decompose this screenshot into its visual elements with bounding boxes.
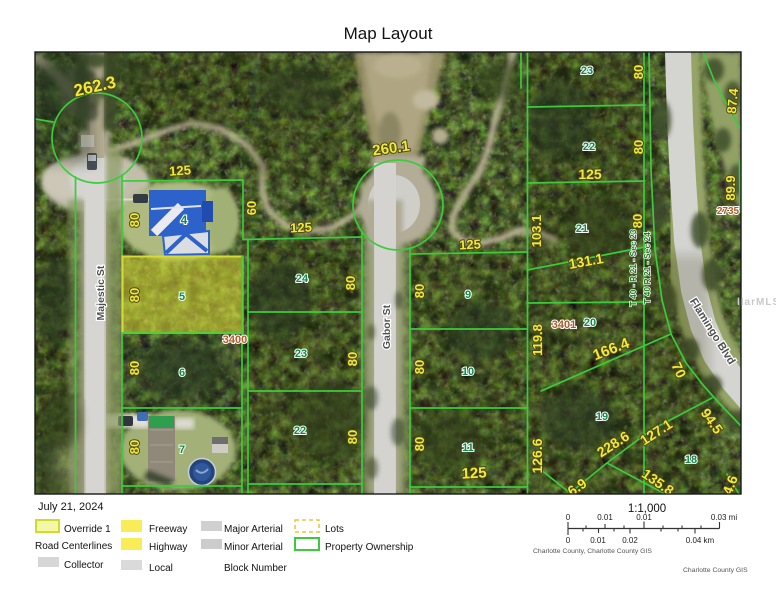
svg-text:23: 23: [295, 348, 307, 360]
svg-text:80: 80: [412, 360, 427, 374]
svg-text:9: 9: [465, 289, 471, 301]
svg-text:Road Centerlines: Road Centerlines: [35, 541, 112, 552]
svg-text:80: 80: [127, 361, 142, 375]
svg-text:7: 7: [179, 444, 185, 456]
svg-text:23: 23: [581, 65, 593, 77]
svg-text:0: 0: [566, 513, 571, 522]
svg-text:Major Arterial: Major Arterial: [224, 524, 283, 535]
svg-text:3400: 3400: [223, 334, 247, 346]
svg-text:80: 80: [127, 440, 142, 454]
svg-text:21: 21: [576, 223, 588, 235]
svg-text:22: 22: [294, 425, 306, 437]
svg-text:89.9: 89.9: [723, 175, 738, 200]
svg-text:0.01: 0.01: [597, 513, 613, 522]
svg-text:80: 80: [345, 352, 360, 366]
svg-text:Local: Local: [149, 563, 173, 574]
svg-text:Majestic St: Majestic St: [95, 265, 107, 320]
svg-text:Highway: Highway: [149, 542, 187, 553]
svg-text:125: 125: [578, 166, 602, 182]
svg-text:Override 1: Override 1: [64, 524, 111, 535]
svg-text:87.4: 87.4: [724, 87, 741, 114]
svg-text:125: 125: [290, 219, 312, 235]
svg-text:T 40 R 21 - Sec 24: T 40 R 21 - Sec 24: [642, 232, 652, 304]
svg-text:Lots: Lots: [325, 524, 344, 535]
svg-text:4: 4: [181, 213, 188, 227]
svg-text:0.04 km: 0.04 km: [686, 536, 715, 545]
svg-text:125: 125: [459, 236, 481, 252]
svg-text:80: 80: [630, 214, 645, 228]
svg-text:60: 60: [244, 201, 259, 215]
svg-text:5: 5: [179, 291, 185, 303]
svg-text:80: 80: [631, 65, 646, 79]
svg-text:Property Ownership: Property Ownership: [325, 542, 414, 553]
svg-text:103.1: 103.1: [529, 215, 544, 248]
svg-text:Freeway: Freeway: [149, 524, 187, 535]
svg-text:22: 22: [583, 141, 595, 153]
svg-text:80: 80: [127, 288, 142, 302]
svg-text:6: 6: [179, 367, 185, 379]
svg-text:Collector: Collector: [64, 560, 104, 571]
svg-text:10: 10: [462, 366, 474, 378]
svg-text:3401: 3401: [552, 319, 576, 331]
svg-text:0.02: 0.02: [622, 536, 638, 545]
svg-text:80: 80: [127, 213, 142, 227]
svg-text:20: 20: [584, 317, 596, 329]
svg-text:T 40 - R 21 - Sec 23: T 40 - R 21 - Sec 23: [628, 229, 638, 306]
svg-text:0.01: 0.01: [590, 536, 606, 545]
svg-text:Charlotte County GIS: Charlotte County GIS: [683, 567, 748, 574]
svg-text:80: 80: [412, 284, 427, 298]
svg-text:80: 80: [343, 276, 358, 290]
svg-text:19: 19: [596, 411, 608, 423]
svg-text:18: 18: [685, 454, 697, 466]
svg-text:Gabor St: Gabor St: [381, 304, 393, 349]
svg-text:Minor Arterial: Minor Arterial: [224, 542, 283, 553]
svg-text:Charlotte County, Charlotte Co: Charlotte County, Charlotte County GIS: [533, 548, 652, 555]
svg-text:125: 125: [461, 464, 487, 482]
svg-text:119.8: 119.8: [530, 324, 545, 356]
svg-text:0: 0: [566, 536, 571, 545]
svg-text:126.6: 126.6: [529, 438, 545, 473]
svg-text:0.03 mi: 0.03 mi: [711, 513, 737, 522]
svg-text:24: 24: [296, 273, 309, 285]
svg-text:125: 125: [169, 162, 192, 178]
svg-text:Map Layout: Map Layout: [344, 24, 433, 43]
svg-text:80: 80: [631, 140, 646, 154]
svg-text:0.01: 0.01: [636, 513, 652, 522]
svg-text:llarMLS: llarMLS: [737, 297, 776, 308]
svg-text:80: 80: [412, 437, 427, 451]
svg-text:Block Number: Block Number: [224, 563, 287, 574]
svg-text:2735: 2735: [717, 206, 740, 217]
svg-text:July 21, 2024: July 21, 2024: [38, 501, 103, 513]
svg-text:11: 11: [462, 442, 474, 454]
svg-text:80: 80: [345, 430, 360, 444]
